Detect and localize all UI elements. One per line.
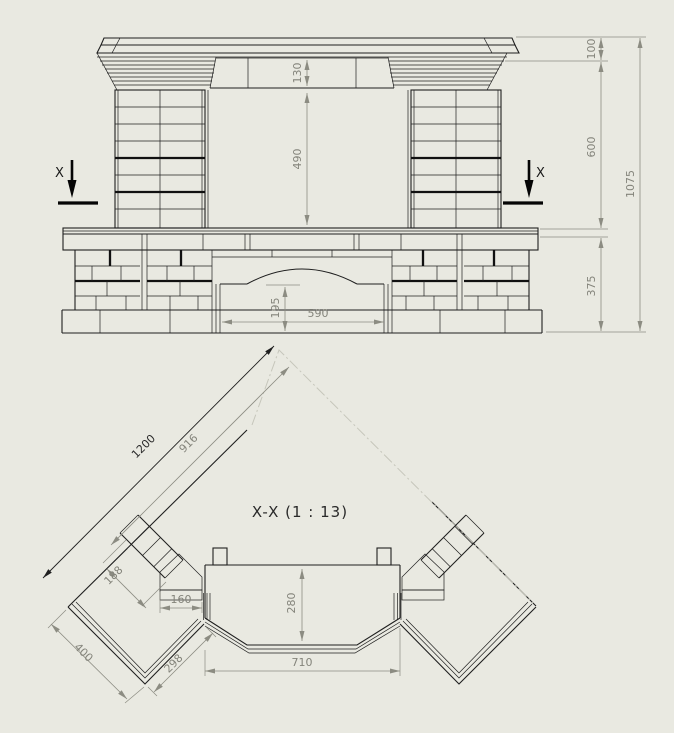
dim-inner-diagonal: 916 (177, 432, 201, 456)
dim-hearth-left-edge: 400 (71, 641, 95, 665)
dim-total-height: 1075 (624, 170, 637, 198)
section-dimensions: 1200 916 188 160 280 710 400 298 (43, 346, 400, 703)
dim-base-opening-height: 195 (269, 298, 282, 319)
dim-cornice-height: 100 (585, 39, 598, 60)
base-pier-right-inner (392, 250, 462, 310)
dim-base-opening-width: 590 (308, 307, 329, 320)
front-view: X X 130 490 195 590 (55, 37, 646, 333)
side-shelf-right (402, 515, 484, 600)
section-view: X-X (1 : 13) (43, 346, 536, 703)
section-marker-left: X (55, 160, 98, 203)
brick-column-left (115, 90, 208, 228)
base-plinth (62, 250, 542, 333)
hearth-fender-right (400, 602, 536, 684)
mantel-shelf (97, 38, 519, 53)
dim-frieze-height: 130 (291, 63, 304, 84)
section-marker-right: X (503, 160, 545, 203)
section-marker-right-label: X (536, 166, 545, 181)
section-outer-walls (68, 350, 536, 607)
brick-column-right (408, 90, 501, 228)
cornice-corbel-right (388, 53, 507, 90)
dim-hearth-right-edge: 298 (162, 652, 186, 676)
drawing-sheet: X X 130 490 195 590 (0, 0, 674, 733)
base-arch-opening (212, 250, 392, 333)
base-pier-left-outer (75, 250, 147, 310)
dim-opening-height: 490 (291, 149, 304, 170)
section-view-title: X-X (1 : 13) (252, 503, 348, 521)
dim-firebox-depth: 280 (285, 593, 298, 614)
section-marker-left-label: X (55, 166, 64, 181)
bench-shelf (63, 228, 538, 250)
dim-overall-diagonal: 1200 (129, 432, 158, 461)
base-pier-left-inner (147, 250, 212, 310)
dim-upper-height: 600 (585, 137, 598, 158)
cad-drawing-canvas: X X 130 490 195 590 (0, 0, 674, 733)
dim-base-height: 375 (585, 276, 598, 297)
hearth-fender-left (68, 602, 204, 684)
dim-firebox-width: 710 (292, 656, 313, 669)
dim-jamb-width: 160 (171, 593, 192, 606)
base-pier-right-outer (464, 250, 529, 310)
